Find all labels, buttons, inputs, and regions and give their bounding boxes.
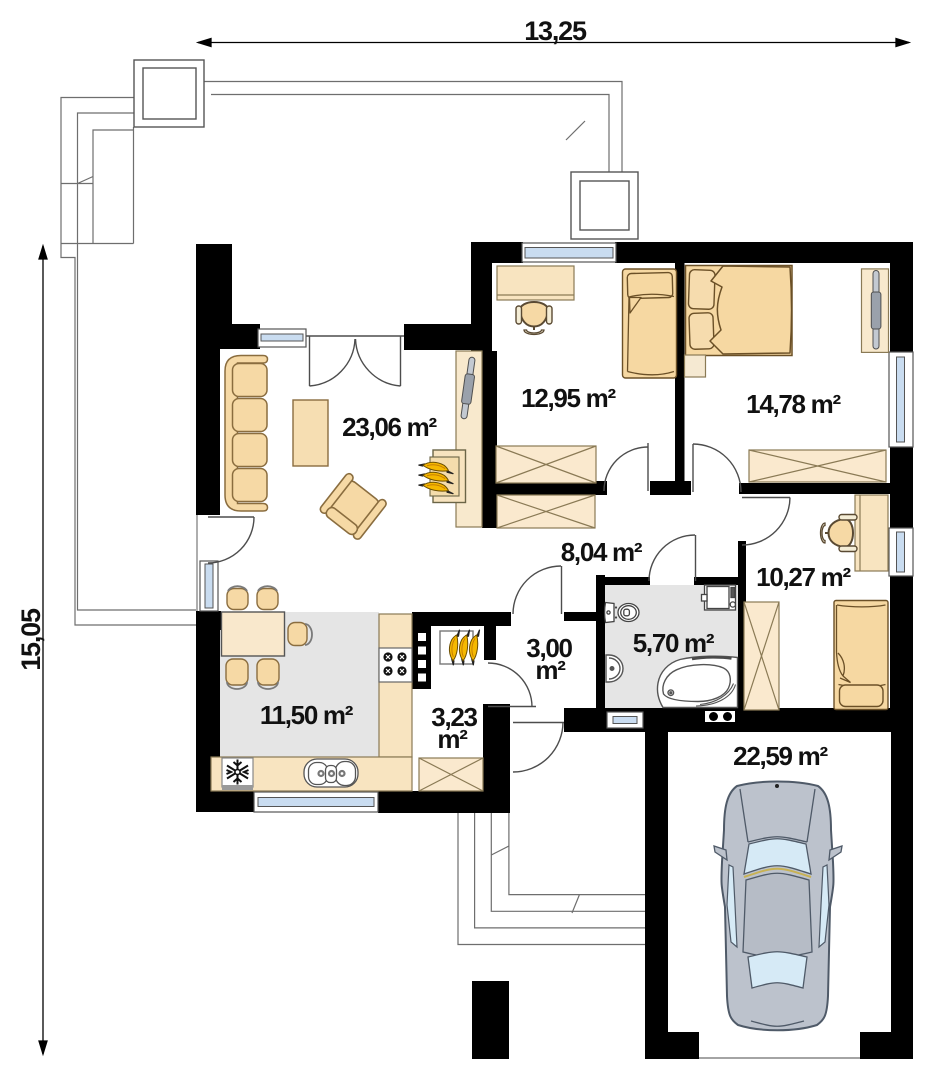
svg-text:14,78 m²: 14,78 m² (746, 389, 841, 419)
svg-text:5,70 m²: 5,70 m² (633, 628, 715, 658)
svg-text:m²: m² (437, 724, 468, 754)
svg-text:23,06 m²: 23,06 m² (342, 412, 437, 442)
svg-text:22,59 m²: 22,59 m² (733, 741, 828, 771)
svg-text:10,27 m²: 10,27 m² (756, 562, 851, 592)
svg-text:m²: m² (535, 655, 566, 685)
svg-text:15,05: 15,05 (16, 608, 46, 671)
svg-text:13,25: 13,25 (524, 16, 587, 46)
svg-text:11,50 m²: 11,50 m² (260, 700, 354, 730)
svg-text:8,04 m²: 8,04 m² (561, 537, 643, 567)
svg-text:12,95 m²: 12,95 m² (521, 383, 616, 413)
